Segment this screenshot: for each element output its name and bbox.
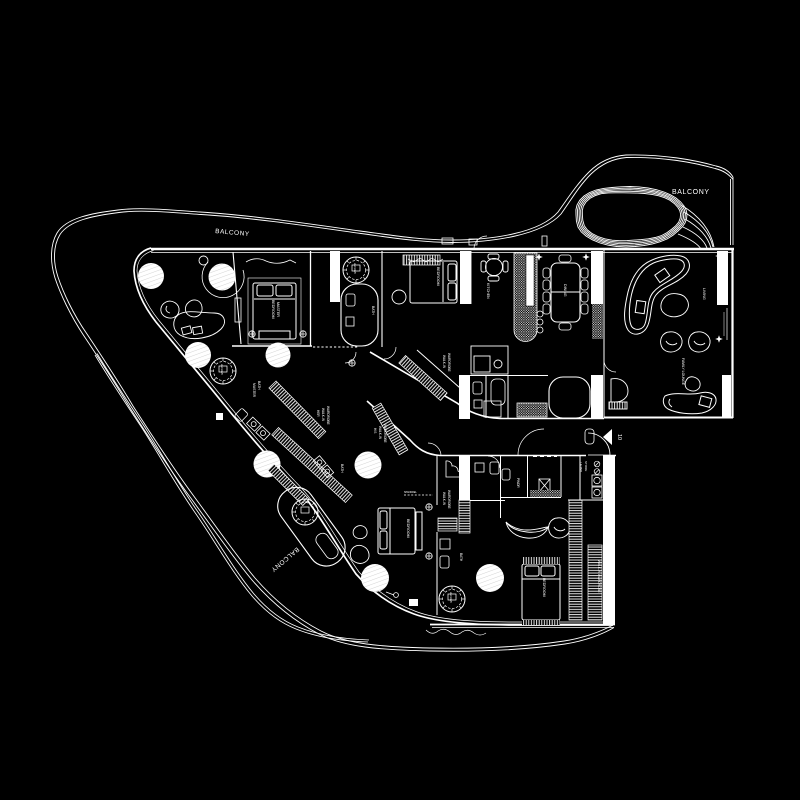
svg-text:LIVING: LIVING [702,288,706,300]
svg-text:WARDROBE: WARDROBE [326,406,330,425]
svg-text:BATH: BATH [459,553,463,562]
svg-text:BEDROOM: BEDROOM [542,578,546,597]
svg-text:10: 10 [616,434,622,440]
svg-text:WARDROBE: WARDROBE [447,490,451,509]
svg-text:MASTER: MASTER [252,383,256,398]
svg-text:LAUND: LAUND [579,462,583,473]
svg-text:BEDROOM: BEDROOM [271,300,275,319]
svg-text:WALK-IN WARDROBE: WALK-IN WARDROBE [597,560,601,593]
svg-text:MASTER: MASTER [276,302,280,317]
svg-text:WALK-IN: WALK-IN [442,355,446,369]
svg-text:HIS: HIS [373,428,377,433]
svg-text:HER: HER [316,410,320,417]
svg-text:SPANDREL: SPANDREL [404,491,417,494]
svg-text:WARDROBE: WARDROBE [383,424,387,443]
svg-text:BEDROOM: BEDROOM [406,519,410,538]
svg-text:WARDROBE: WARDROBE [447,353,451,372]
svg-text:BALCONY: BALCONY [672,189,710,196]
svg-text:FAMILY LOUNGE: FAMILY LOUNGE [681,358,685,386]
svg-text:BATH: BATH [257,381,261,390]
svg-text:WALK-IN: WALK-IN [442,492,446,506]
svg-text:PWDR: PWDR [516,478,520,488]
svg-text:BATH: BATH [340,464,344,473]
svg-text:BEDROOM: BEDROOM [436,267,440,286]
svg-text:STORE: STORE [584,461,588,471]
svg-text:KITCHEN: KITCHEN [486,283,490,299]
svg-text:DINING: DINING [563,284,567,297]
svg-text:BATH: BATH [371,306,375,315]
svg-text:JACUZZI: JACUZZI [449,592,453,603]
svg-text:WALK-IN: WALK-IN [378,426,382,440]
svg-text:WALK-IN: WALK-IN [321,408,325,422]
svg-text:JACUZZI: JACUZZI [220,364,224,375]
svg-text:JACUZZI: JACUZZI [353,263,357,274]
